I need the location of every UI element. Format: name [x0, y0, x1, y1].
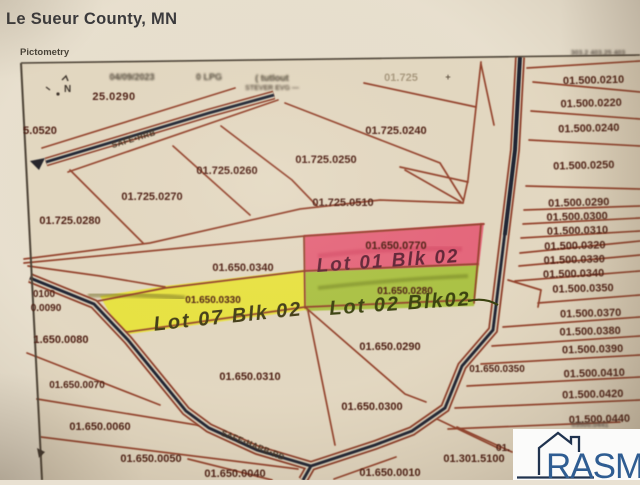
- svg-text:RASM: RASM: [546, 447, 640, 480]
